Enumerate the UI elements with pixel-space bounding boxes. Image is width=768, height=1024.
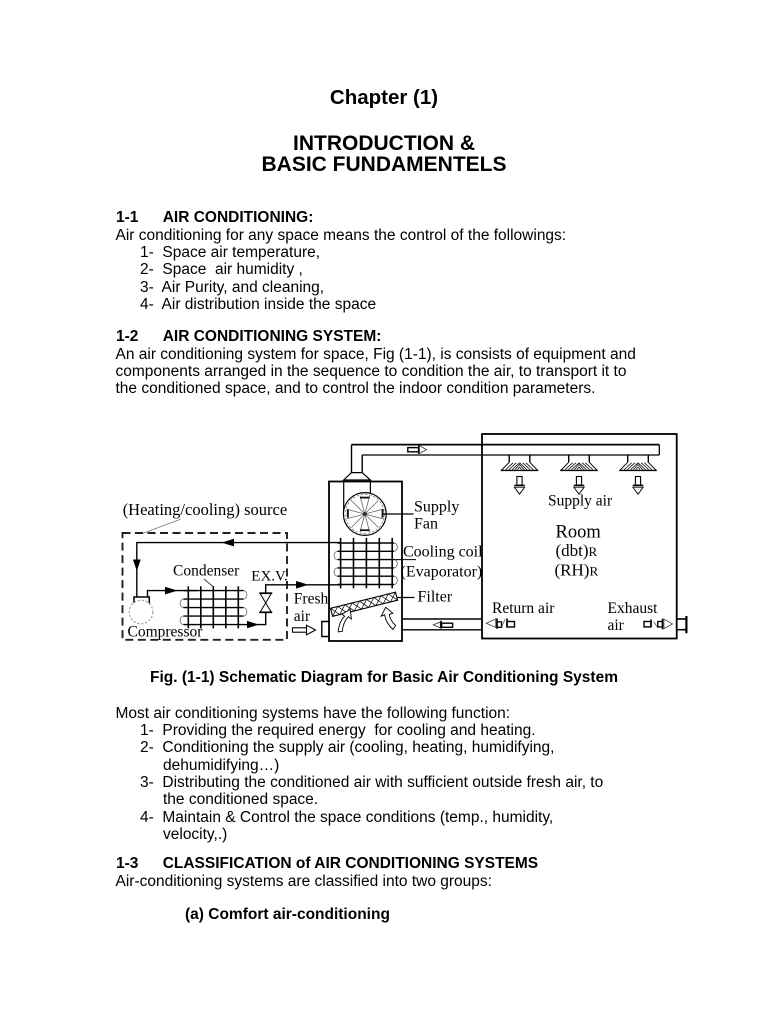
svg-text:Return air: Return air	[492, 600, 555, 617]
svg-text:(RH)R: (RH)R	[555, 561, 599, 580]
svg-text:air: air	[608, 617, 625, 634]
svg-text:Compressor: Compressor	[128, 624, 204, 641]
svg-text:EX.V.: EX.V.	[251, 569, 287, 585]
svg-text:Filter: Filter	[418, 589, 453, 606]
svg-text:(Evaporator): (Evaporator)	[401, 564, 483, 581]
svg-text:air: air	[294, 608, 311, 625]
svg-text:Room: Room	[556, 523, 602, 543]
svg-text:(Heating/cooling) source: (Heating/cooling) source	[123, 500, 287, 519]
svg-text:Supply air: Supply air	[548, 493, 613, 510]
svg-text:Supply: Supply	[414, 499, 459, 516]
svg-text:Exhaust: Exhaust	[608, 600, 659, 617]
svg-text:Cooling coil: Cooling coil	[403, 544, 483, 561]
svg-text:Fan: Fan	[414, 516, 438, 533]
svg-text:Condenser: Condenser	[173, 563, 240, 580]
svg-text:Fresh: Fresh	[294, 591, 329, 608]
svg-text:(dbt)R: (dbt)R	[556, 541, 598, 560]
